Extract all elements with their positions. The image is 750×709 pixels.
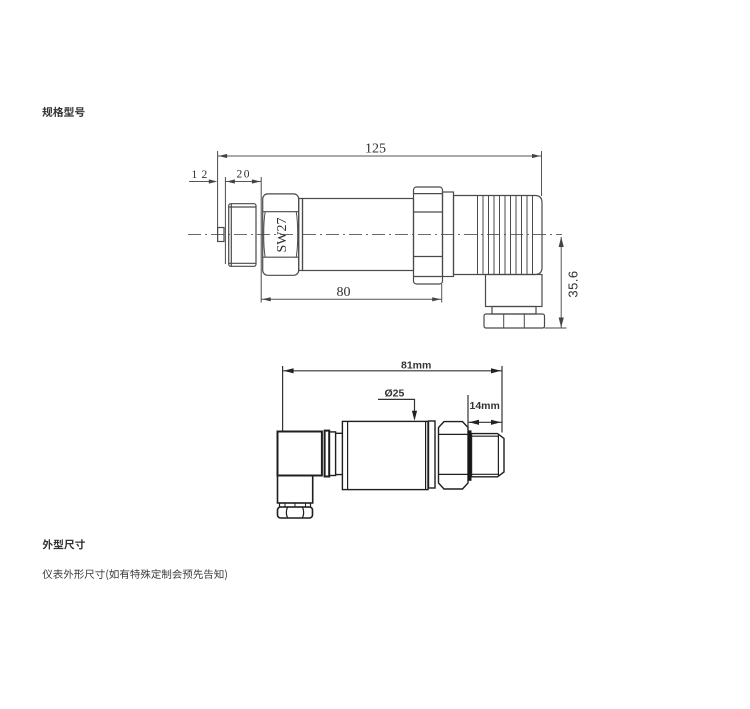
svg-text:80: 80 bbox=[337, 285, 351, 300]
svg-text:14mm: 14mm bbox=[470, 400, 500, 412]
svg-text:SW27: SW27 bbox=[275, 218, 290, 253]
svg-text:12: 12 bbox=[192, 169, 212, 181]
svg-text:35.6: 35.6 bbox=[566, 270, 581, 297]
svg-text:Ø25: Ø25 bbox=[385, 388, 405, 400]
svg-text:125: 125 bbox=[365, 142, 386, 157]
svg-text:20: 20 bbox=[237, 169, 252, 181]
svg-text:81mm: 81mm bbox=[401, 360, 431, 372]
